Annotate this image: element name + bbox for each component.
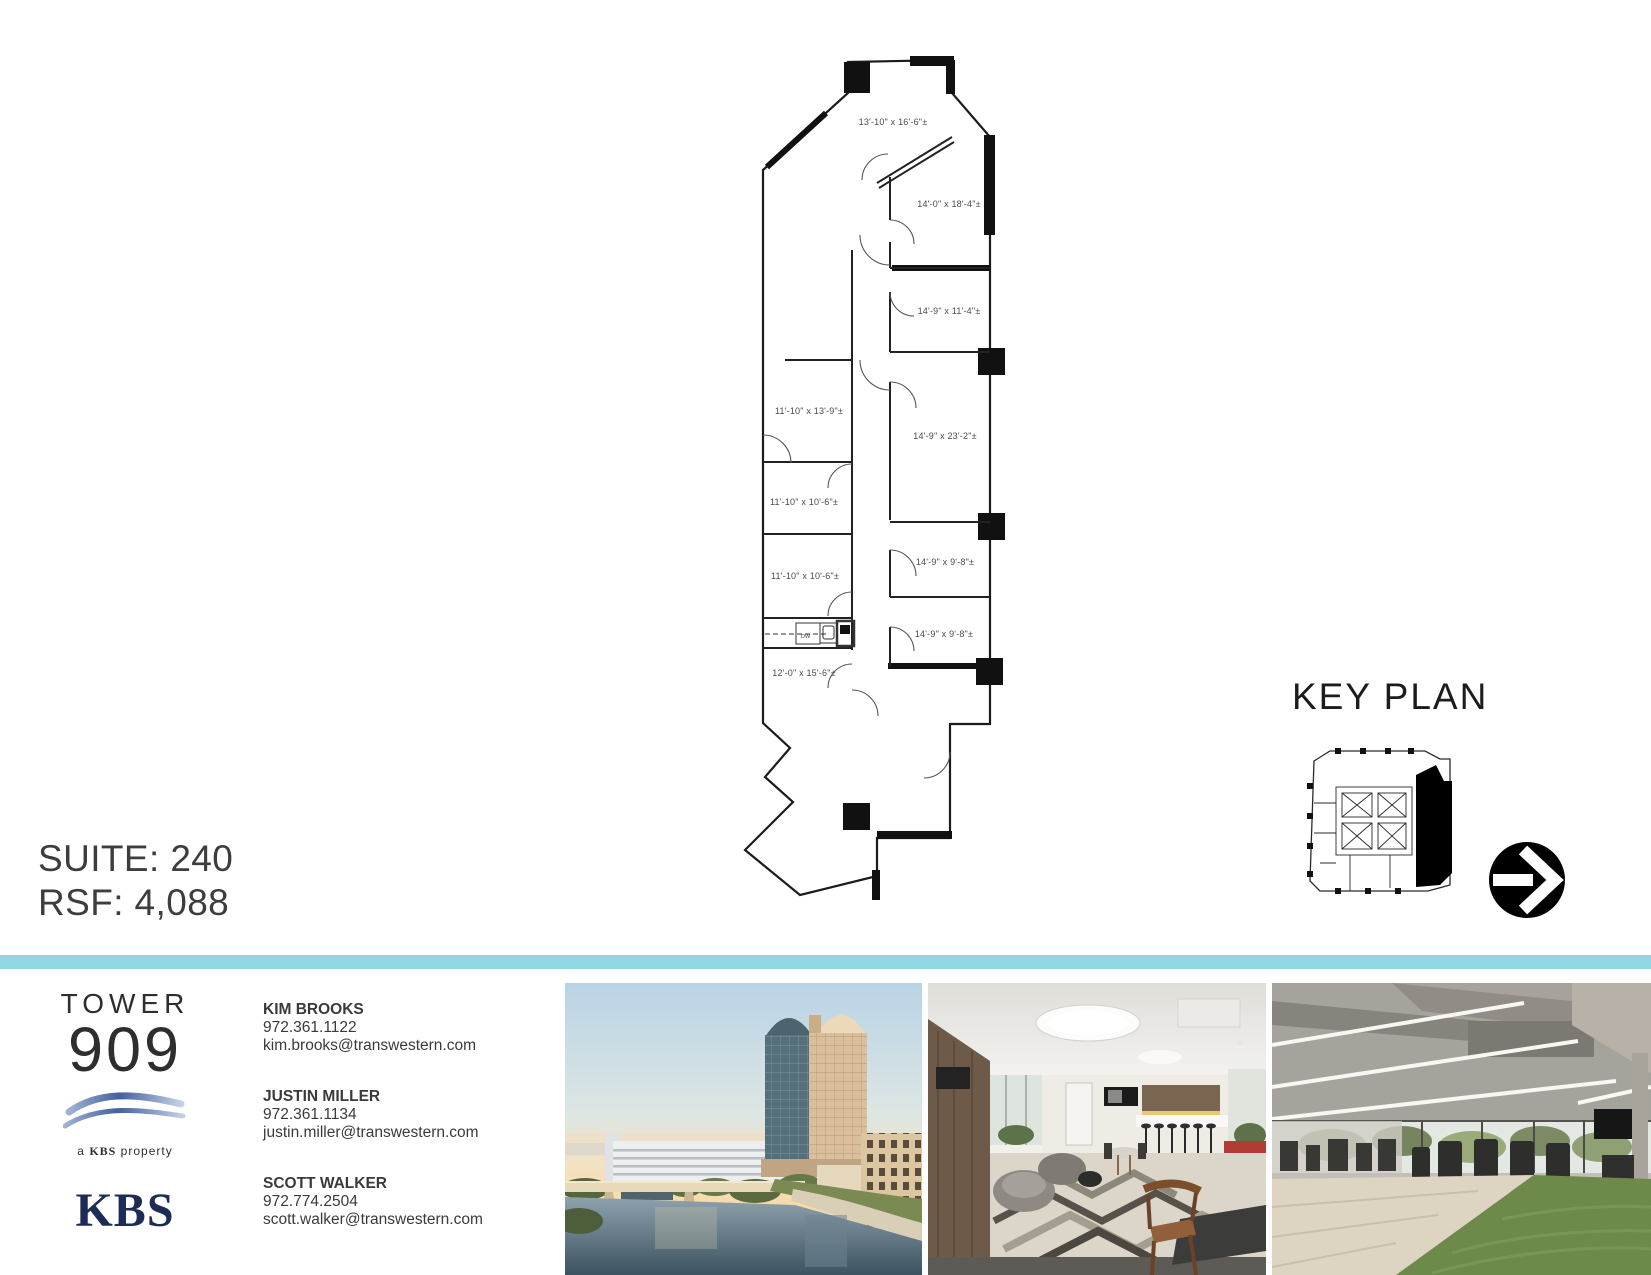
contact-email: justin.miller@transwestern.com <box>263 1124 483 1142</box>
contact-name: KIM BROOKS <box>263 1001 483 1019</box>
room-dimension-label: 14'-9" x 9'-8"± <box>915 629 973 639</box>
dishwasher-label: DW <box>801 634 811 640</box>
contact-name: JUSTIN MILLER <box>263 1088 483 1106</box>
contact-name: SCOTT WALKER <box>263 1175 483 1193</box>
contact-phone: 972.774.2504 <box>263 1193 483 1211</box>
floor-plan: DW 13'-10" x 16'-6"± 14'-0" x 18'-4"± 14… <box>740 52 1012 902</box>
kbs-logo: KBS <box>50 1183 200 1238</box>
logo-line-909: 909 <box>50 1020 200 1080</box>
room-dimension-label: 11'-10" x 13'-9"± <box>775 406 843 416</box>
leasing-flyer-page: DW 13'-10" x 16'-6"± 14'-0" x 18'-4"± 14… <box>0 0 1651 1275</box>
contact-email: kim.brooks@transwestern.com <box>263 1037 483 1055</box>
contact-block: SCOTT WALKER 972.774.2504 scott.walker@t… <box>263 1175 483 1229</box>
key-plan-title: KEY PLAN <box>1292 676 1488 718</box>
contact-phone: 972.361.1134 <box>263 1106 483 1124</box>
contact-block: JUSTIN MILLER 972.361.1134 justin.miller… <box>263 1088 483 1142</box>
room-dimension-label: 14'-9" x 23'-2"± <box>913 431 977 441</box>
photo-fitness-center <box>1272 983 1651 1275</box>
room-dimension-label: 13'-10" x 16'-6"± <box>859 117 928 127</box>
teal-divider-bar <box>0 955 1651 969</box>
room-dimension-label: 11'-10" x 10'-6"± <box>771 571 839 581</box>
contact-email: scott.walker@transwestern.com <box>263 1211 483 1229</box>
room-dimension-label: 14'-9" x 9'-8"± <box>916 557 974 567</box>
contact-block: KIM BROOKS 972.361.1122 kim.brooks@trans… <box>263 1001 483 1055</box>
waves-icon <box>50 1088 200 1137</box>
photo-tenant-lounge <box>928 983 1266 1275</box>
photo-building-exterior <box>565 983 922 1275</box>
room-dimension-label: 11'-10" x 10'-6"± <box>770 497 838 507</box>
room-dimension-label: 12'-0" x 15'-6"± <box>772 668 836 678</box>
kbs-property-tagline: a KBS property <box>50 1144 200 1159</box>
suite-label: SUITE: 240 <box>38 838 233 880</box>
room-dimension-label: 14'-9" x 11'-4"± <box>918 306 981 316</box>
contact-phone: 972.361.1122 <box>263 1019 483 1037</box>
orientation-arrow-icon <box>1487 838 1567 922</box>
suite-highlight <box>1416 765 1452 887</box>
tower909-logo: TOWER 909 a KBS property KBS <box>50 988 200 1238</box>
key-plan-graphic <box>1290 745 1465 897</box>
room-dimension-label: 14'-0" x 18'-4"± <box>917 199 981 209</box>
floor-plan-drawing: DW <box>740 52 1012 902</box>
contact-list: KIM BROOKS 972.361.1122 kim.brooks@trans… <box>263 1001 483 1262</box>
rsf-label: RSF: 4,088 <box>38 882 229 924</box>
